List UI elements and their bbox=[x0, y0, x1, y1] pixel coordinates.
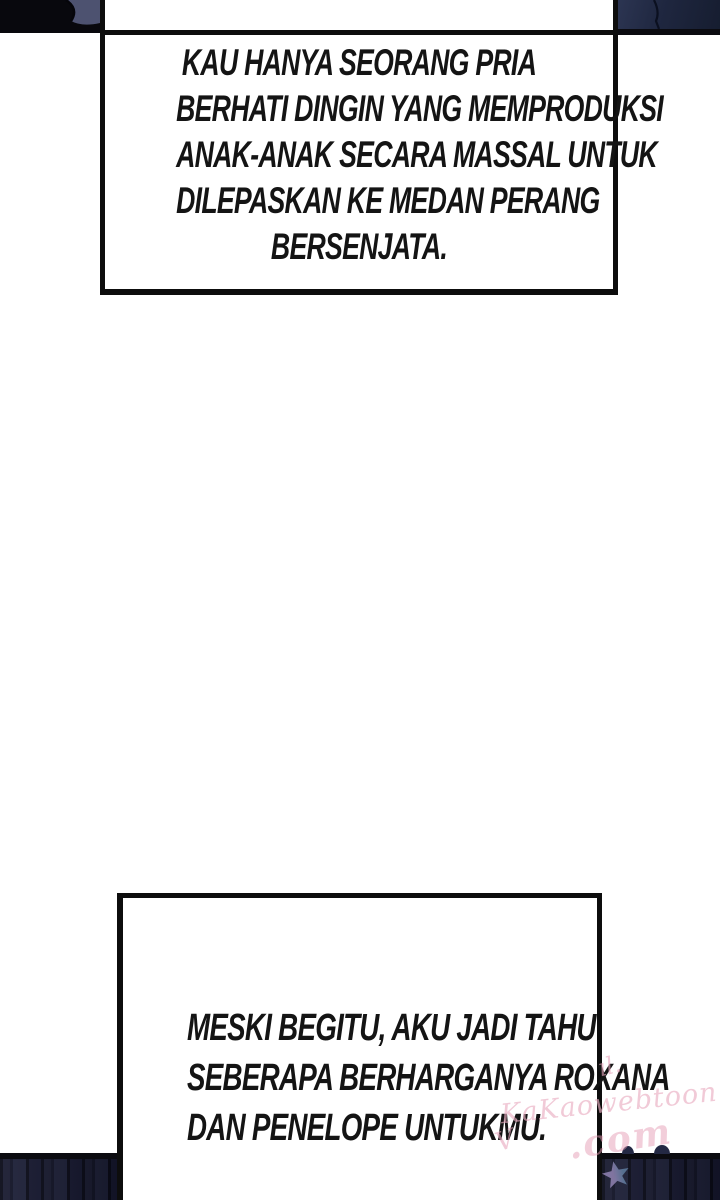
comic-panel-top-right bbox=[618, 0, 720, 35]
caption-box-top-border bbox=[105, 30, 613, 35]
silhouette-shoulder-art bbox=[0, 0, 100, 33]
caption-text-bottom: MESKI BEGITU, AKU JADI TAHU SEBERAPA BER… bbox=[187, 1003, 533, 1153]
caption-line: BERSENJATA. bbox=[176, 224, 542, 270]
caption-line: ANAK-ANAK SECARA MASSAL UNTUK bbox=[176, 132, 542, 178]
star-icon bbox=[599, 1158, 632, 1190]
caption-box-top: KAU HANYA SEORANG PRIA BERHATI DINGIN YA… bbox=[100, 0, 618, 295]
panel-edge-bump bbox=[622, 1146, 634, 1154]
caption-line: BERHATI DINGIN YANG MEMPRODUKSI bbox=[176, 86, 542, 132]
comic-panel-top-left bbox=[0, 0, 100, 33]
caption-text-top: KAU HANYA SEORANG PRIA BERHATI DINGIN YA… bbox=[176, 40, 542, 270]
panel-edge-bump bbox=[654, 1145, 670, 1154]
caption-line: SEBERAPA BERHARGANYA ROXANA bbox=[187, 1053, 533, 1103]
caption-line: DILEPASKAN KE MEDAN PERANG bbox=[176, 178, 542, 224]
comic-panel-bottom-left bbox=[0, 1153, 117, 1200]
crack-line-art bbox=[618, 0, 720, 29]
caption-line: DAN PENELOPE UNTUKMU. bbox=[187, 1103, 533, 1153]
caption-line: MESKI BEGITU, AKU JADI TAHU bbox=[187, 1003, 533, 1053]
caption-box-bottom: MESKI BEGITU, AKU JADI TAHU SEBERAPA BER… bbox=[117, 893, 602, 1200]
caption-line: KAU HANYA SEORANG PRIA bbox=[176, 40, 542, 86]
webtoon-page: KAU HANYA SEORANG PRIA BERHATI DINGIN YA… bbox=[0, 0, 720, 1200]
